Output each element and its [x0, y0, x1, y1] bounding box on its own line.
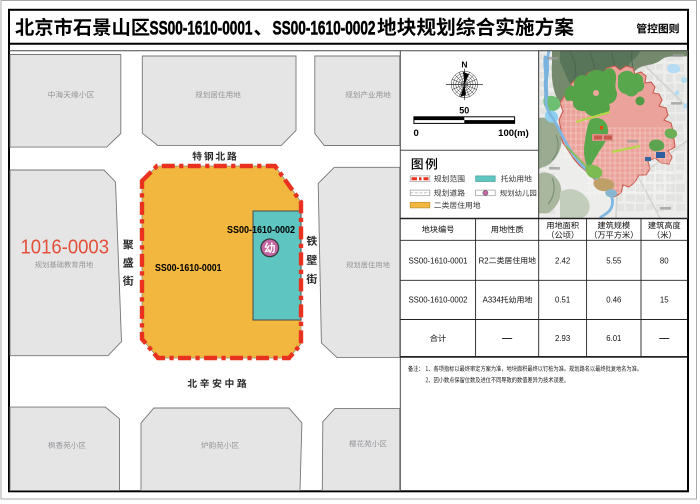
svg-text:SS00-1610-0002: SS00-1610-0002 [273, 18, 376, 39]
svg-text:SS00-1610-0001: SS00-1610-0001 [408, 256, 467, 265]
svg-text:SS00-1610-0002: SS00-1610-0002 [227, 225, 295, 236]
svg-text:50: 50 [459, 105, 469, 115]
svg-text:R2: R2 [479, 256, 489, 265]
svg-text:SS00-1610-0002: SS00-1610-0002 [408, 296, 467, 305]
svg-text:SS00-1610-0001: SS00-1610-0001 [150, 18, 253, 39]
svg-text:A334: A334 [483, 296, 502, 305]
svg-text:2.93: 2.93 [555, 334, 570, 343]
svg-text:100(m): 100(m) [498, 128, 529, 139]
svg-text:0.51: 0.51 [555, 296, 570, 305]
svg-text:N: N [461, 60, 467, 70]
svg-text:SS00-1610-0001: SS00-1610-0001 [155, 263, 222, 274]
svg-text:0: 0 [414, 128, 419, 139]
svg-text:80: 80 [660, 256, 669, 265]
svg-text:1016-0003: 1016-0003 [21, 236, 110, 259]
svg-text:2.42: 2.42 [555, 256, 570, 265]
svg-text:6.01: 6.01 [606, 334, 621, 343]
svg-text:15: 15 [660, 296, 669, 305]
svg-text:0.46: 0.46 [606, 296, 621, 305]
svg-text:5.55: 5.55 [606, 256, 622, 265]
